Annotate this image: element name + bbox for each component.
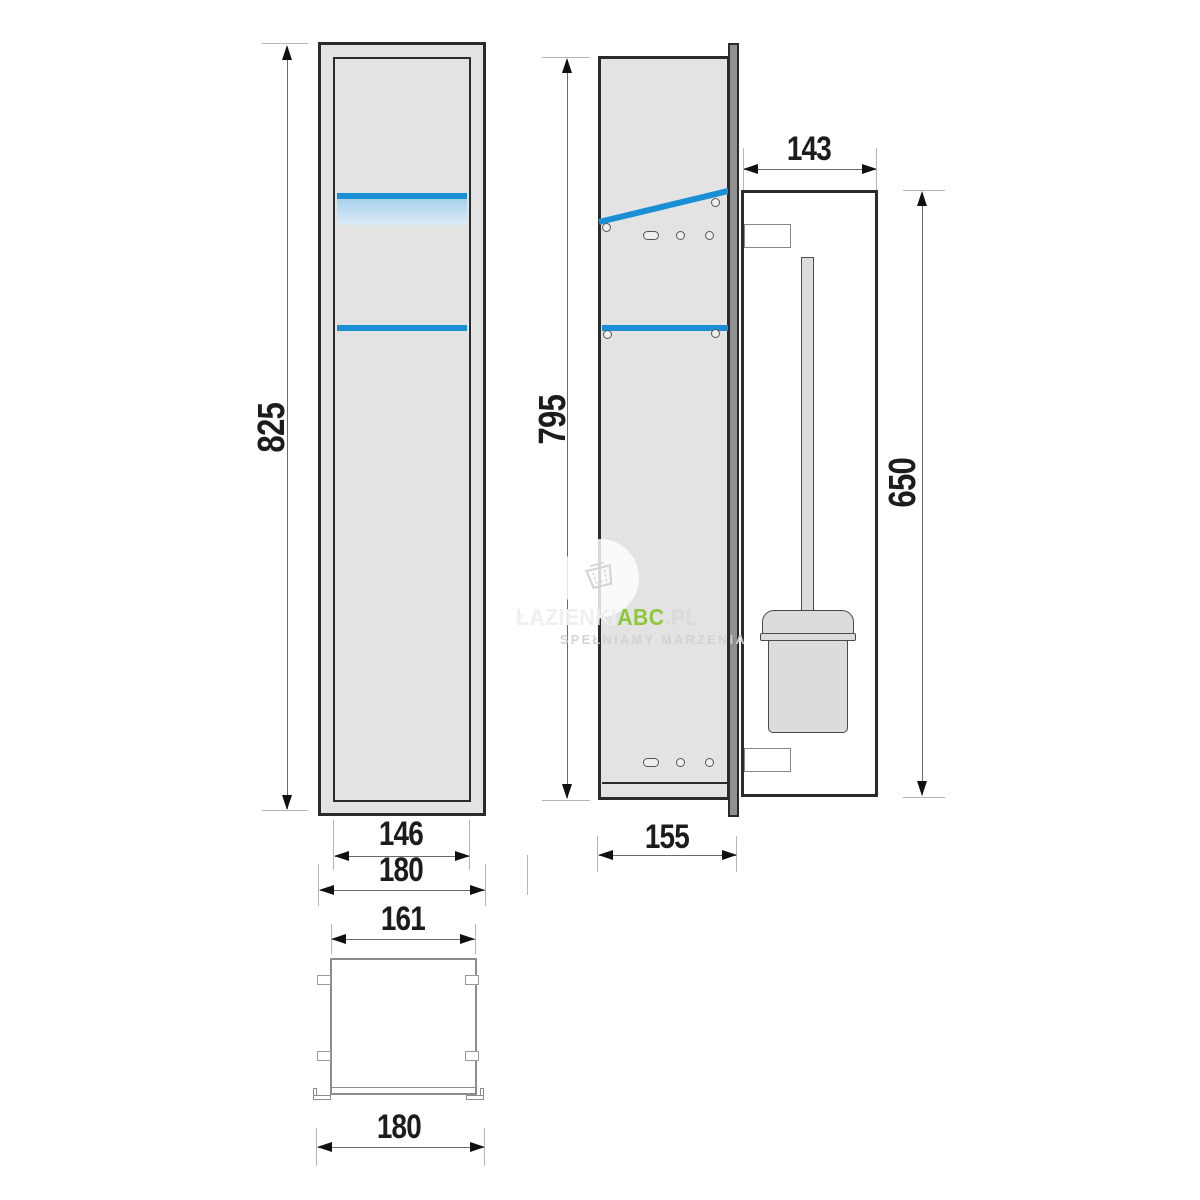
side-bottom-panel-line: [602, 782, 728, 784]
dimension-label-plan-inner-width: 161: [343, 901, 463, 937]
watermark-brand-prefix: ŁAZIENKI: [516, 604, 617, 630]
shopping-basket-icon: [577, 553, 623, 604]
dim-arrow-up-icon: [562, 58, 572, 73]
screw-hole: [676, 758, 685, 767]
technical-drawing-canvas: 825 146 180 161 180: [0, 0, 1200, 1200]
dimension-label-front-outer-width: 180: [341, 852, 461, 888]
niche-width-value: 143: [787, 131, 831, 167]
dimension-line-143: [744, 169, 877, 170]
plan-inner-width-value: 161: [381, 901, 425, 937]
screw-hole: [705, 231, 714, 240]
dim-arrow-left-icon: [743, 164, 758, 174]
plan-outer-width-value: 180: [377, 1109, 421, 1145]
dim-arrow-down-icon: [282, 795, 292, 810]
extension-line: [316, 1128, 317, 1166]
dimension-label-brush-zone-height: 650: [878, 423, 928, 543]
side-depth-value: 155: [645, 819, 689, 855]
side-view-door-edge: [728, 43, 739, 817]
dim-arrow-left-icon: [331, 934, 346, 944]
front-niche-opening-band: [337, 199, 467, 225]
dimension-line-180-plan: [318, 1147, 484, 1148]
plan-mount-tab-left-bottom: [317, 1051, 331, 1061]
dim-arrow-down-icon: [917, 781, 927, 796]
extension-line: [331, 924, 332, 954]
extension-line: [903, 797, 945, 798]
side-height-value: 795: [528, 395, 578, 445]
front-inner-width-value: 146: [379, 816, 423, 852]
mount-slot-hole: [643, 231, 659, 240]
extension-line: [542, 800, 590, 801]
watermark-brand-suffix: .PL: [664, 604, 698, 630]
extension-line: [333, 820, 334, 870]
extension-line: [485, 864, 486, 906]
toilet-brush-holder-cup: [768, 640, 848, 733]
front-view-door-panel: [333, 57, 471, 802]
watermark-brand-accent: ABC: [617, 604, 664, 630]
dimension-line-161: [332, 939, 475, 940]
toilet-brush-handle: [801, 257, 814, 613]
niche-mount-tab-bottom: [744, 748, 791, 772]
dim-arrow-left-icon: [317, 1142, 332, 1152]
front-height-value: 825: [247, 403, 297, 453]
dim-arrow-right-icon: [460, 934, 475, 944]
dimension-line-180-front: [320, 890, 485, 891]
dim-arrow-up-icon: [917, 191, 927, 206]
screw-hole: [676, 231, 685, 240]
side-shelf-line-bottom: [602, 325, 728, 331]
dimension-label-front-inner-width: 146: [341, 816, 461, 852]
brush-zone-height-value: 650: [878, 458, 928, 508]
dimension-label-side-height: 795: [528, 360, 578, 480]
side-view-body: [598, 56, 730, 800]
extension-line: [527, 855, 528, 895]
screw-hole: [603, 330, 612, 339]
niche-mount-tab-top: [744, 224, 791, 248]
extension-line: [743, 148, 744, 190]
screw-hole: [711, 198, 720, 207]
plan-mount-tab-left-top: [317, 975, 331, 985]
front-outer-width-value: 180: [379, 852, 423, 888]
dim-arrow-right-icon: [862, 164, 877, 174]
mount-slot-hole: [643, 758, 659, 767]
extension-line: [262, 810, 308, 811]
dim-arrow-left-icon: [319, 885, 334, 895]
extension-line: [484, 1128, 485, 1166]
plan-mount-tab-right-bottom: [465, 1051, 479, 1061]
watermark-brand: ŁAZIENKIABC.PL: [516, 604, 699, 631]
extension-line: [475, 924, 476, 954]
plan-mount-tab-right-top: [465, 975, 479, 985]
extension-line: [469, 820, 470, 870]
front-shelf-line-bottom: [337, 325, 467, 331]
extension-line: [876, 148, 877, 190]
dimension-label-side-depth: 155: [607, 819, 727, 855]
dim-arrow-right-icon: [470, 1142, 485, 1152]
dimension-label-front-height: 825: [247, 368, 297, 488]
watermark-tagline: SPEŁNIAMY MARZENIA: [560, 633, 747, 647]
dim-arrow-right-icon: [470, 885, 485, 895]
extension-line: [262, 43, 308, 44]
plan-view-body: [330, 958, 477, 1095]
dim-arrow-down-icon: [562, 784, 572, 799]
dimension-label-plan-outer-width: 180: [339, 1109, 459, 1145]
dimension-label-niche-width: 143: [749, 131, 869, 167]
plan-flange-left-foot: [313, 1095, 331, 1100]
plan-flange-right-foot: [466, 1095, 484, 1100]
toilet-brush-holder-lid: [762, 610, 854, 635]
screw-hole: [602, 223, 611, 232]
plan-bottom-panel-line: [332, 1087, 475, 1088]
screw-hole: [711, 329, 720, 338]
dim-arrow-up-icon: [282, 45, 292, 60]
screw-hole: [705, 758, 714, 767]
